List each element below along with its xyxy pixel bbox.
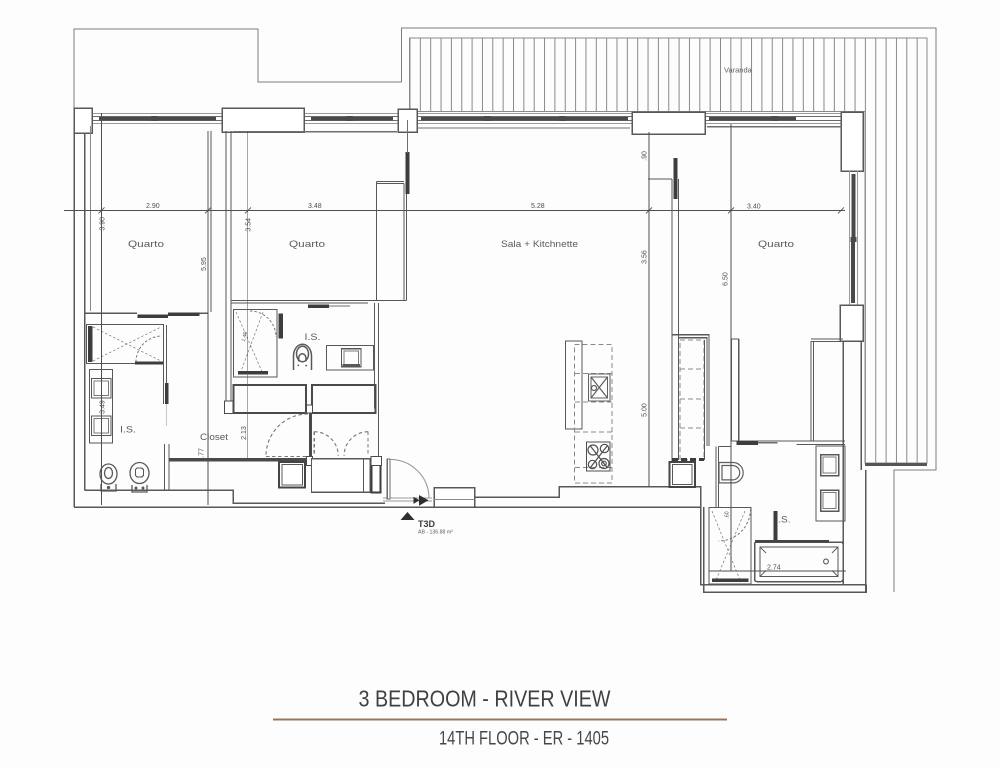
svg-text:.90: .90 (642, 151, 649, 161)
svg-text:Sala + Kitchnette: Sala + Kitchnette (501, 239, 578, 249)
svg-text:Quarto: Quarto (128, 239, 164, 249)
svg-text:Quarto: Quarto (289, 239, 325, 249)
svg-text:14TH FLOOR - ER - 1405: 14TH FLOOR - ER - 1405 (439, 729, 609, 750)
svg-text:3.54: 3.54 (246, 218, 253, 232)
svg-text:Closet: Closet (200, 432, 229, 442)
svg-text:Quarto: Quarto (758, 239, 794, 249)
svg-text:.77: .77 (199, 448, 206, 458)
svg-text:T3D: T3D (418, 519, 436, 529)
svg-text:3.49: 3.49 (100, 400, 107, 414)
svg-text:2.13: 2.13 (241, 426, 248, 440)
svg-text:I.S.: I.S. (305, 332, 321, 342)
svg-text:3 BEDROOM - RIVER VIEW: 3 BEDROOM - RIVER VIEW (359, 686, 611, 712)
svg-text:5.95: 5.95 (201, 257, 208, 271)
svg-text:3.90: 3.90 (100, 217, 107, 231)
svg-text:I.S.: I.S. (120, 425, 136, 435)
svg-text:5.00: 5.00 (642, 403, 649, 417)
svg-text:2.90: 2.90 (146, 203, 160, 210)
svg-text:AB - 136.88 m²: AB - 136.88 m² (418, 530, 453, 536)
svg-text:I.S.: I.S. (776, 515, 791, 525)
svg-text:3.56: 3.56 (642, 250, 649, 264)
svg-text:3.40: 3.40 (747, 204, 761, 211)
svg-text:5.28: 5.28 (531, 203, 545, 210)
svg-text:3.48: 3.48 (308, 203, 322, 210)
svg-text:Varanda: Varanda (724, 66, 753, 75)
svg-text:2.74: 2.74 (767, 565, 781, 572)
svg-text:6.50: 6.50 (723, 272, 730, 286)
svg-text:.60: .60 (725, 511, 731, 518)
